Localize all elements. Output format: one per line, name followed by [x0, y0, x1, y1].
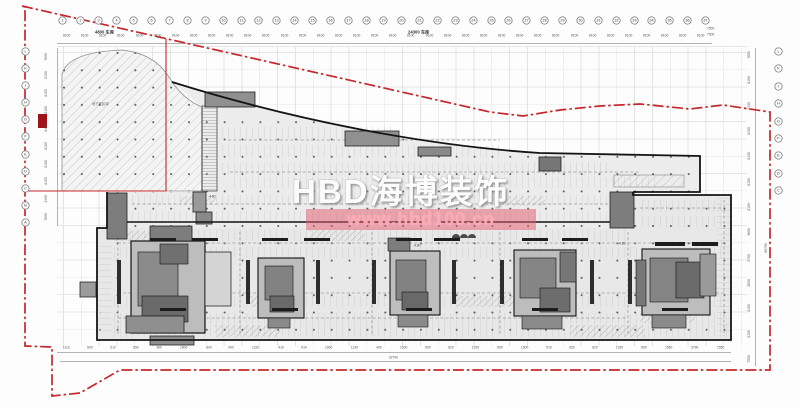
- grid-bubble: E: [21, 150, 29, 158]
- dimension-value: 7500: [707, 27, 714, 30]
- dimension-value: 1560: [665, 346, 672, 349]
- top-bay-dims: 8100810081008100810081008100810081008100…: [60, 33, 708, 39]
- left-grid-bubbles: LKJHGFEDCBA: [21, 47, 30, 227]
- dimension-value: 8100: [208, 34, 215, 37]
- dimension-value: 850: [134, 346, 140, 349]
- bottom-total-dim: 32790: [389, 356, 398, 359]
- watermark-url: www.hbd100.cn: [347, 209, 495, 230]
- grid-bubble: H: [21, 99, 29, 107]
- grid-bubble: 19: [380, 16, 388, 24]
- grid-bubble: 7: [166, 16, 174, 24]
- elevation-label: -4.80: [208, 195, 216, 198]
- grid-bubble: 4: [112, 16, 120, 24]
- dimension-value: 8100: [262, 34, 269, 37]
- grid-bubble: 2: [76, 16, 84, 24]
- dimension-value: 1150: [616, 346, 623, 349]
- grid-bubble: D: [21, 167, 29, 175]
- grid-bubble: 32: [612, 16, 620, 24]
- dimension-value: 1550: [717, 346, 724, 349]
- dimension-value: 7600: [45, 53, 48, 60]
- dimension-value: 8100: [589, 34, 596, 37]
- grid-bubble: B: [21, 201, 29, 209]
- dimension-value: 1110: [63, 346, 70, 349]
- dimension-value: 1130: [351, 346, 358, 349]
- dimension-value: 8100: [226, 34, 233, 37]
- dimension-value: 5750: [748, 254, 751, 261]
- watermark-url-bar: www.hbd100.cn: [306, 209, 536, 230]
- grid-bubble: 8: [183, 16, 191, 24]
- dimension-value: 890: [641, 346, 647, 349]
- grid-bubble: 1: [58, 16, 66, 24]
- right-dims: 7600810081008100810081008100360057503600…: [745, 52, 755, 362]
- grid-bubble: K: [21, 64, 29, 72]
- dimension-value: 8100: [407, 34, 414, 37]
- dimension-value: 8100: [63, 34, 70, 37]
- dimension-value: 8100: [172, 34, 179, 37]
- dimension-value: 8100: [661, 34, 668, 37]
- dimension-value: 8100: [748, 178, 751, 185]
- dimension-value: 8100: [117, 34, 124, 37]
- dimension-value: 8100: [154, 34, 161, 37]
- dimension-value: 8100: [679, 34, 686, 37]
- elevation-label: -4.80: [618, 242, 626, 245]
- grid-bubble: L: [21, 47, 29, 55]
- grid-bubble: 10: [219, 16, 227, 24]
- dimension-value: 8100: [643, 34, 650, 37]
- grid-bubble: 28: [541, 16, 549, 24]
- dimension-value: 800: [206, 346, 212, 349]
- dimension-value: 7000: [748, 355, 751, 362]
- grid-bubble: 24: [469, 16, 477, 24]
- dimension-value: 8100: [516, 34, 523, 37]
- dimension-value: 910: [278, 346, 284, 349]
- dimension-value: 510: [111, 346, 117, 349]
- dimension-value: 8100: [45, 178, 48, 185]
- arc-symbols: [452, 234, 476, 238]
- grid-bubble: 11: [237, 16, 245, 24]
- dimension-value: 1900: [180, 346, 187, 349]
- dimension-value: 8100: [81, 34, 88, 37]
- grid-bubble: 33: [630, 16, 638, 24]
- dimension-value: 1220: [252, 346, 259, 349]
- dimension-value: 800: [425, 346, 431, 349]
- right-grid-bubbles: LKJHGFEDC: [774, 47, 783, 195]
- top-grid-bubbles: 1234567891011121314151617181920212223242…: [58, 16, 710, 25]
- grid-bubble: 5: [130, 16, 138, 24]
- grid-bubble: 36: [683, 16, 691, 24]
- dimension-value: 8100: [45, 71, 48, 78]
- right-total-dim: 69700: [765, 243, 768, 252]
- grid-bubble: 34: [648, 16, 656, 24]
- dimension-value: 820: [448, 346, 454, 349]
- dimension-value: 8100: [748, 77, 751, 84]
- dimension-value: 8100: [389, 34, 396, 37]
- dimension-value: 8100: [748, 153, 751, 160]
- grid-bubble: 37: [701, 16, 709, 24]
- dimension-value: 8100: [444, 34, 451, 37]
- dimension-value: 1900: [325, 346, 332, 349]
- dimension-value: 8100: [371, 34, 378, 37]
- grid-bubble: J: [21, 82, 29, 90]
- dimension-value: 4100: [45, 195, 48, 202]
- dimension-value: 600: [88, 346, 94, 349]
- grid-bubble: 25: [487, 16, 495, 24]
- dimension-value: 8100: [136, 34, 143, 37]
- dimension-value: 3600: [748, 229, 751, 236]
- grid-bubble: 13: [273, 16, 281, 24]
- dimension-value: 8100: [480, 34, 487, 37]
- grid-bubble: 21: [416, 16, 424, 24]
- dimension-value: 8100: [45, 124, 48, 131]
- dimension-value: 8100: [748, 102, 751, 109]
- core-cluster-3: [388, 238, 440, 327]
- floorplan-canvas: 1234567891011121314151617181920212223242…: [0, 0, 800, 408]
- elevation-label: -4.80: [413, 244, 421, 247]
- dimension-value: 8100: [353, 34, 360, 37]
- watermark-brand: HBD海博装饰: [292, 165, 510, 213]
- grid-bubble: H: [774, 99, 782, 107]
- grid-bubble: 35: [666, 16, 674, 24]
- top-dim-label-mid: 24300 车库: [408, 28, 429, 34]
- dimension-value: 7800: [45, 213, 48, 220]
- grid-bubble: 17: [344, 16, 352, 24]
- grid-bubble: 12: [255, 16, 263, 24]
- dimension-value: 360: [157, 346, 163, 349]
- dimension-value: 8100: [748, 203, 751, 210]
- dimension-value: 400: [376, 346, 382, 349]
- dimension-value: 8100: [99, 34, 106, 37]
- dimension-value: 1150: [472, 346, 479, 349]
- grid-bubble: A: [21, 218, 29, 226]
- grid-bubble: F: [21, 133, 29, 141]
- grid-bubble: 18: [362, 16, 370, 24]
- dimension-value: 8100: [45, 89, 48, 96]
- dimension-value: 8100: [571, 34, 578, 37]
- ramp-strip: [202, 106, 217, 191]
- dimension-value: 8100: [244, 34, 251, 37]
- dimension-value: 910: [301, 346, 307, 349]
- grid-bubble: 31: [594, 16, 602, 24]
- dimension-value: 3600: [748, 279, 751, 286]
- dimension-value: 8100: [281, 34, 288, 37]
- grid-bubble: F: [774, 134, 782, 142]
- dimension-value: 8100: [625, 34, 632, 37]
- bottom-dims: 1110600510850360190080090012209109101900…: [60, 345, 728, 351]
- grid-bubble: C: [21, 184, 29, 192]
- grid-bubble: 14: [291, 16, 299, 24]
- dimension-value: 8100: [45, 142, 48, 149]
- dimension-value: 900: [229, 346, 235, 349]
- grid-bubble: G: [774, 117, 782, 125]
- dimension-value: 8100: [748, 330, 751, 337]
- grid-bubble: 3: [94, 16, 102, 24]
- grid-bubble: C: [774, 186, 782, 194]
- dimension-value: 820: [592, 346, 598, 349]
- grid-bubble: D: [774, 169, 782, 177]
- dimension-value: 8100: [45, 107, 48, 114]
- grid-bubble: E: [774, 152, 782, 160]
- core-cluster-2: [258, 258, 304, 328]
- grid-bubble: 16: [326, 16, 334, 24]
- hatched-zone: [62, 50, 202, 191]
- grid-bubble: G: [21, 116, 29, 124]
- dimension-value: 3790: [691, 346, 698, 349]
- dimension-value: 7500: [707, 33, 714, 36]
- grid-bubble: 23: [451, 16, 459, 24]
- grid-bubble: 6: [148, 16, 156, 24]
- dimension-value: 910: [546, 346, 552, 349]
- dimension-value: 8100: [335, 34, 342, 37]
- grid-bubble: 15: [308, 16, 316, 24]
- hatch-area-label: 地下室区域: [92, 101, 109, 106]
- grid-bubble: L: [774, 47, 782, 55]
- dimension-value: 7600: [748, 51, 751, 58]
- dimension-value: 8100: [426, 34, 433, 37]
- dimension-value: 8100: [190, 34, 197, 37]
- dimension-value: 8100: [45, 160, 48, 167]
- grid-bubble: 27: [523, 16, 531, 24]
- dimension-value: 8100: [607, 34, 614, 37]
- grid-bubble: 26: [505, 16, 513, 24]
- dimension-value: 8100: [748, 305, 751, 312]
- grid-bubble: 30: [576, 16, 584, 24]
- left-dims: 7600810081008100810081008100810041007800: [42, 54, 52, 220]
- dimension-value: 8100: [317, 34, 324, 37]
- grid-bubble: 29: [558, 16, 566, 24]
- dimension-value: 8100: [748, 127, 751, 134]
- grid-bubble: 22: [433, 16, 441, 24]
- dimension-value: 8100: [534, 34, 541, 37]
- dimension-value: 1000: [400, 346, 407, 349]
- grid-bubble: J: [774, 82, 782, 90]
- dimension-value: 8100: [462, 34, 469, 37]
- top-right-dims: 75007500: [704, 26, 717, 38]
- dimension-value: 8100: [552, 34, 559, 37]
- dimension-value: 8100: [498, 34, 505, 37]
- grid-bubble: 9: [201, 16, 209, 24]
- grid-bubble: K: [774, 65, 782, 73]
- top-dim-label-left: 4800 车库: [95, 28, 114, 34]
- dimension-value: 820: [569, 346, 575, 349]
- dimension-value: 890: [497, 346, 503, 349]
- grid-bubble: 20: [398, 16, 406, 24]
- dimension-value: 8100: [299, 34, 306, 37]
- dimension-value: 1900: [521, 346, 528, 349]
